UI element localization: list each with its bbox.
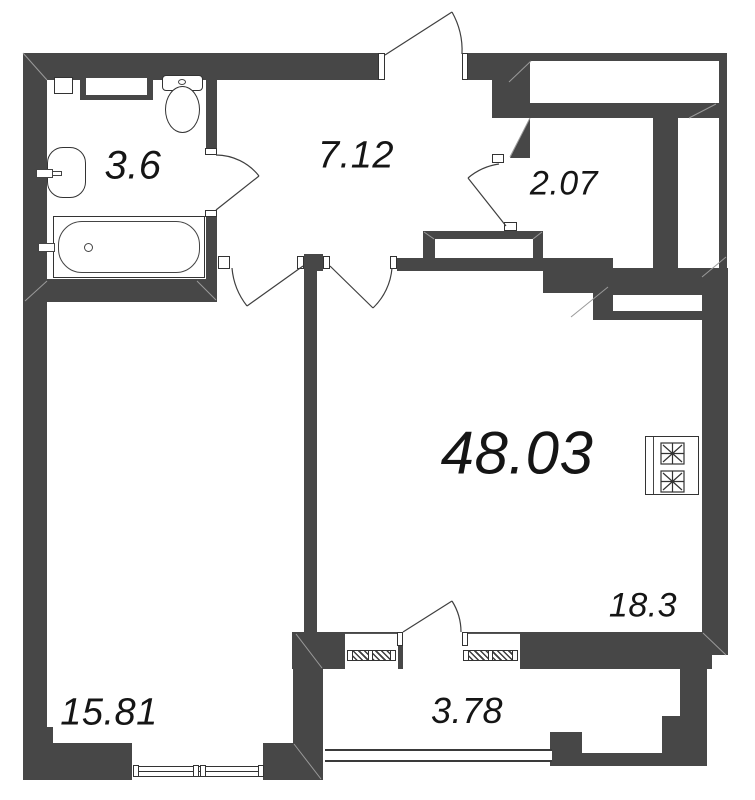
washing-machine-icon	[54, 77, 73, 94]
room-area-label-wardrobe: 2.07	[530, 165, 598, 204]
wall	[507, 103, 719, 118]
window-frame	[135, 766, 197, 777]
room-area-label-balcony: 3.78	[431, 690, 503, 732]
wall	[702, 632, 728, 655]
wall	[613, 268, 702, 295]
wall	[23, 279, 217, 302]
window-frame	[198, 766, 261, 777]
wall	[530, 53, 727, 61]
wall	[550, 732, 582, 753]
balcony-door-jamb	[397, 632, 403, 646]
wall	[468, 53, 492, 80]
wall	[263, 743, 293, 780]
balcony-door-opening	[403, 632, 462, 669]
bedroom-door-swing	[232, 266, 303, 306]
window-post	[133, 765, 139, 777]
stove-edge	[650, 437, 654, 494]
entrance-door-swing	[385, 12, 462, 55]
balcony-door-jamb	[462, 632, 468, 646]
room-area-label-bedroom: 15.81	[60, 692, 158, 735]
living-door-jamb	[390, 256, 397, 269]
room-area-label-kitchen-living: 18.3	[609, 587, 677, 626]
floor-plan: 3.6 7.12 2.07 48.03 18.3 15.81 3.78	[0, 0, 755, 800]
living-door-swing	[330, 266, 392, 308]
window-post	[200, 765, 206, 777]
toilet-bowl-icon	[165, 86, 200, 133]
bathtub-basin-icon	[58, 221, 200, 273]
radiator-end	[368, 650, 373, 661]
total-area-label: 48.03	[441, 419, 594, 488]
radiator-end	[463, 650, 469, 661]
sink-faucet-icon	[36, 169, 53, 178]
wall	[719, 53, 727, 276]
wall	[653, 118, 678, 270]
radiator-end	[347, 650, 353, 661]
wall	[680, 669, 707, 766]
entrance-door-jamb	[462, 53, 468, 80]
bathtub-drain-icon	[84, 243, 93, 252]
bedroom-door-jamb	[297, 256, 304, 269]
window-post	[193, 765, 199, 777]
wall	[610, 311, 702, 320]
bedroom-door-jamb	[218, 256, 230, 269]
duct-opening	[435, 239, 533, 258]
wall	[23, 743, 132, 780]
wall	[206, 80, 217, 148]
wall	[550, 753, 662, 766]
window-post	[258, 765, 264, 777]
wall	[47, 727, 53, 743]
wardrobe-door-jamb	[504, 222, 517, 231]
wall	[662, 716, 680, 766]
radiator-end	[488, 650, 493, 661]
wall-partition	[304, 268, 317, 632]
radiator-end	[390, 650, 396, 661]
balcony-glazing	[325, 749, 552, 762]
living-door-jamb	[323, 256, 330, 269]
entrance-door-jamb	[378, 53, 385, 80]
bathroom-door-jamb	[205, 210, 217, 217]
bathtub-faucet-icon	[38, 243, 55, 252]
bathroom-door-swing	[216, 155, 259, 210]
wall	[23, 53, 47, 780]
room-area-label-hallway: 7.12	[318, 135, 394, 178]
radiator-end	[512, 650, 518, 661]
toilet-flush-icon	[178, 79, 186, 85]
room-area-label-bathroom: 3.6	[104, 144, 161, 189]
balcony-door-swing	[403, 601, 461, 632]
wall-niche-opening	[86, 78, 147, 95]
wardrobe-door-jamb	[492, 154, 504, 163]
wardrobe-door-swing	[468, 164, 506, 226]
bathroom-door-jamb	[205, 148, 217, 155]
wall	[702, 276, 728, 655]
wall	[293, 632, 323, 780]
sink-faucet-icon	[52, 171, 62, 176]
plan-linework	[0, 0, 755, 800]
wall-chamfer	[510, 118, 530, 158]
